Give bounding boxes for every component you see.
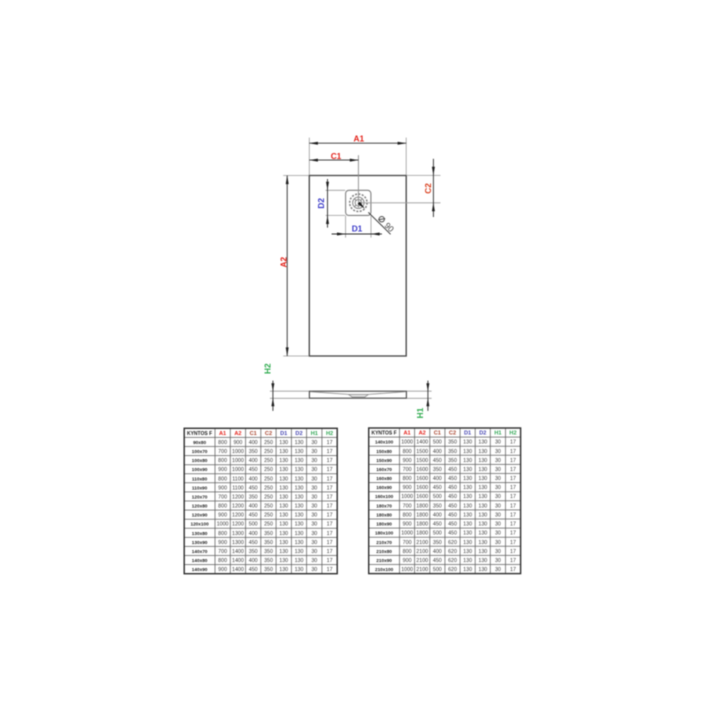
svg-text:17: 17: [327, 567, 333, 573]
svg-text:1000: 1000: [401, 494, 413, 500]
svg-text:KYNTOS F: KYNTOS F: [371, 431, 396, 437]
svg-text:130: 130: [295, 513, 304, 519]
svg-text:130: 130: [463, 522, 472, 528]
svg-text:500: 500: [433, 567, 442, 573]
svg-text:350: 350: [448, 458, 457, 464]
svg-text:800: 800: [403, 449, 412, 455]
svg-text:900: 900: [233, 440, 242, 446]
svg-text:250: 250: [264, 440, 273, 446]
svg-text:900: 900: [218, 540, 227, 546]
svg-text:17: 17: [510, 567, 516, 573]
svg-text:1500: 1500: [416, 458, 428, 464]
svg-text:250: 250: [264, 504, 273, 510]
svg-text:30: 30: [495, 467, 501, 473]
svg-text:500: 500: [433, 531, 442, 537]
svg-text:130: 130: [478, 503, 487, 509]
svg-text:350: 350: [264, 549, 273, 555]
svg-text:1800: 1800: [416, 512, 428, 518]
svg-text:17: 17: [510, 531, 516, 537]
svg-text:350: 350: [264, 558, 273, 564]
svg-text:140x70: 140x70: [192, 549, 208, 554]
svg-text:130: 130: [478, 440, 487, 446]
svg-text:350: 350: [448, 449, 457, 455]
svg-text:130: 130: [478, 485, 487, 491]
svg-text:620: 620: [448, 549, 457, 555]
svg-text:130: 130: [295, 440, 304, 446]
svg-text:30: 30: [311, 449, 317, 455]
svg-text:130: 130: [478, 540, 487, 546]
svg-text:180x80: 180x80: [376, 512, 392, 517]
svg-text:210x80: 210x80: [376, 549, 392, 554]
svg-text:450: 450: [433, 522, 442, 528]
svg-text:350: 350: [249, 495, 258, 501]
svg-text:350: 350: [433, 540, 442, 546]
svg-text:H1: H1: [415, 407, 425, 418]
svg-text:D2: D2: [479, 431, 486, 437]
svg-text:17: 17: [327, 549, 333, 555]
svg-text:130: 130: [463, 494, 472, 500]
svg-text:350: 350: [448, 440, 457, 446]
svg-text:130: 130: [295, 458, 304, 464]
svg-text:A2: A2: [419, 431, 426, 437]
svg-text:30: 30: [311, 513, 317, 519]
svg-text:30: 30: [311, 467, 317, 473]
svg-text:130: 130: [295, 549, 304, 555]
svg-text:30: 30: [495, 440, 501, 446]
svg-text:900: 900: [218, 467, 227, 473]
svg-text:110x90: 110x90: [192, 485, 208, 490]
svg-text:17: 17: [327, 540, 333, 546]
svg-text:17: 17: [510, 467, 516, 473]
svg-text:140x90: 140x90: [192, 567, 208, 572]
svg-text:1500: 1500: [416, 449, 428, 455]
svg-text:620: 620: [448, 540, 457, 546]
svg-text:120x70: 120x70: [192, 495, 208, 500]
svg-text:30: 30: [311, 504, 317, 510]
svg-text:2100: 2100: [416, 558, 428, 564]
svg-text:250: 250: [264, 476, 273, 482]
svg-text:1000: 1000: [232, 458, 244, 464]
svg-text:130: 130: [295, 540, 304, 546]
svg-text:D1: D1: [352, 224, 363, 234]
svg-text:17: 17: [327, 531, 333, 537]
svg-text:800: 800: [218, 476, 227, 482]
svg-text:130: 130: [463, 549, 472, 555]
svg-text:30: 30: [495, 476, 501, 482]
svg-text:30: 30: [495, 531, 501, 537]
svg-text:150x80: 150x80: [376, 449, 392, 454]
svg-text:450: 450: [249, 567, 258, 573]
svg-text:150x90: 150x90: [376, 458, 392, 463]
svg-text:H2: H2: [509, 431, 516, 437]
svg-text:30: 30: [495, 485, 501, 491]
svg-text:100x70: 100x70: [192, 449, 208, 454]
svg-text:30: 30: [495, 512, 501, 518]
svg-text:30: 30: [495, 567, 501, 573]
svg-text:130: 130: [279, 449, 288, 455]
svg-text:800: 800: [218, 504, 227, 510]
svg-text:130: 130: [279, 467, 288, 473]
svg-text:17: 17: [327, 467, 333, 473]
svg-text:C2: C2: [265, 431, 272, 437]
svg-text:160x70: 160x70: [376, 467, 392, 472]
svg-text:A1: A1: [404, 431, 411, 437]
svg-text:450: 450: [448, 522, 457, 528]
svg-text:400: 400: [249, 440, 258, 446]
svg-text:130: 130: [295, 495, 304, 501]
svg-text:400: 400: [249, 504, 258, 510]
svg-text:350: 350: [249, 549, 258, 555]
svg-text:180x70: 180x70: [376, 503, 392, 508]
svg-text:C2: C2: [449, 431, 456, 437]
svg-text:1400: 1400: [416, 440, 428, 446]
svg-text:H1: H1: [494, 431, 501, 437]
svg-text:1000: 1000: [401, 567, 413, 573]
svg-text:130: 130: [463, 449, 472, 455]
svg-text:400: 400: [249, 476, 258, 482]
svg-text:350: 350: [264, 567, 273, 573]
svg-text:130: 130: [478, 494, 487, 500]
svg-text:450: 450: [249, 485, 258, 491]
svg-text:250: 250: [264, 449, 273, 455]
svg-text:130: 130: [463, 512, 472, 518]
svg-text:620: 620: [448, 567, 457, 573]
svg-text:1300: 1300: [232, 531, 244, 537]
svg-text:250: 250: [264, 458, 273, 464]
svg-text:400: 400: [433, 512, 442, 518]
svg-text:450: 450: [448, 512, 457, 518]
svg-text:17: 17: [510, 540, 516, 546]
svg-text:130: 130: [295, 567, 304, 573]
svg-text:250: 250: [264, 522, 273, 528]
svg-text:1200: 1200: [232, 495, 244, 501]
svg-text:140x100: 140x100: [375, 440, 394, 445]
svg-text:30: 30: [495, 549, 501, 555]
svg-text:450: 450: [448, 494, 457, 500]
svg-text:130: 130: [478, 549, 487, 555]
svg-text:120x90: 120x90: [192, 513, 208, 518]
svg-text:1000: 1000: [401, 531, 413, 537]
svg-text:17: 17: [327, 522, 333, 528]
svg-text:180x90: 180x90: [376, 522, 392, 527]
svg-text:350: 350: [264, 540, 273, 546]
svg-text:210x90: 210x90: [376, 558, 392, 563]
svg-text:1400: 1400: [232, 558, 244, 564]
svg-text:D1: D1: [280, 431, 287, 437]
svg-text:17: 17: [510, 522, 516, 528]
svg-text:17: 17: [510, 458, 516, 464]
svg-text:1800: 1800: [416, 531, 428, 537]
svg-text:130: 130: [478, 531, 487, 537]
svg-text:130: 130: [295, 476, 304, 482]
svg-text:H2: H2: [262, 363, 272, 374]
svg-text:130: 130: [279, 567, 288, 573]
svg-text:210x70: 210x70: [376, 540, 392, 545]
svg-text:1400: 1400: [232, 567, 244, 573]
svg-text:17: 17: [510, 558, 516, 564]
svg-text:900: 900: [403, 558, 412, 564]
svg-text:2100: 2100: [416, 540, 428, 546]
svg-text:1800: 1800: [416, 522, 428, 528]
svg-text:A2: A2: [234, 431, 241, 437]
svg-text:1000: 1000: [217, 522, 229, 528]
svg-text:130: 130: [279, 440, 288, 446]
svg-text:130: 130: [279, 549, 288, 555]
svg-text:30: 30: [495, 558, 501, 564]
svg-text:17: 17: [327, 449, 333, 455]
svg-text:17: 17: [510, 476, 516, 482]
svg-text:250: 250: [264, 485, 273, 491]
svg-text:800: 800: [218, 531, 227, 537]
svg-text:160x90: 160x90: [376, 485, 392, 490]
svg-text:130: 130: [295, 558, 304, 564]
svg-text:130: 130: [279, 476, 288, 482]
svg-text:800: 800: [218, 440, 227, 446]
svg-text:KYNTOS F: KYNTOS F: [187, 431, 212, 437]
svg-text:17: 17: [510, 494, 516, 500]
svg-text:130: 130: [279, 540, 288, 546]
svg-text:450: 450: [433, 485, 442, 491]
svg-text:400: 400: [433, 476, 442, 482]
svg-text:130: 130: [463, 540, 472, 546]
svg-text:800: 800: [218, 458, 227, 464]
svg-text:1000: 1000: [232, 449, 244, 455]
svg-text:130: 130: [478, 567, 487, 573]
svg-text:30: 30: [495, 494, 501, 500]
svg-text:1800: 1800: [416, 503, 428, 509]
svg-text:17: 17: [327, 513, 333, 519]
svg-text:450: 450: [448, 503, 457, 509]
svg-text:30: 30: [311, 522, 317, 528]
svg-text:17: 17: [327, 495, 333, 501]
svg-text:800: 800: [403, 476, 412, 482]
svg-text:450: 450: [249, 540, 258, 546]
svg-text:1100: 1100: [232, 485, 243, 491]
svg-text:450: 450: [448, 485, 457, 491]
svg-text:700: 700: [403, 540, 412, 546]
svg-text:30: 30: [311, 440, 317, 446]
svg-text:30: 30: [495, 522, 501, 528]
svg-text:1600: 1600: [416, 494, 428, 500]
svg-text:900: 900: [218, 567, 227, 573]
svg-text:450: 450: [448, 467, 457, 473]
svg-text:90x80: 90x80: [193, 440, 206, 445]
svg-text:900: 900: [403, 485, 412, 491]
svg-text:160x80: 160x80: [376, 476, 392, 481]
svg-text:130x80: 130x80: [192, 531, 208, 536]
svg-text:17: 17: [327, 458, 333, 464]
svg-text:30: 30: [311, 567, 317, 573]
svg-text:A1: A1: [219, 431, 226, 437]
svg-text:500: 500: [433, 494, 442, 500]
svg-text:450: 450: [433, 458, 442, 464]
svg-text:900: 900: [403, 458, 412, 464]
svg-text:17: 17: [327, 504, 333, 510]
svg-text:130x90: 130x90: [192, 540, 208, 545]
svg-text:1600: 1600: [416, 467, 428, 473]
svg-text:C1: C1: [331, 151, 342, 161]
svg-text:130: 130: [295, 531, 304, 537]
svg-text:700: 700: [403, 467, 412, 473]
svg-text:130: 130: [463, 476, 472, 482]
svg-text:30: 30: [495, 449, 501, 455]
svg-text:1100: 1100: [232, 476, 243, 482]
svg-text:120x80: 120x80: [192, 504, 208, 509]
svg-text:130: 130: [279, 558, 288, 564]
svg-text:500: 500: [249, 522, 258, 528]
svg-text:17: 17: [510, 485, 516, 491]
svg-text:1200: 1200: [232, 522, 244, 528]
svg-text:17: 17: [510, 503, 516, 509]
svg-text:1300: 1300: [232, 540, 244, 546]
svg-text:100x80: 100x80: [192, 458, 208, 463]
svg-text:130: 130: [279, 522, 288, 528]
svg-text:250: 250: [264, 467, 273, 473]
svg-text:130: 130: [463, 440, 472, 446]
svg-text:30: 30: [311, 458, 317, 464]
svg-text:130: 130: [295, 522, 304, 528]
svg-text:A1: A1: [353, 133, 364, 143]
svg-text:30: 30: [311, 495, 317, 501]
svg-text:130: 130: [463, 458, 472, 464]
svg-text:130: 130: [279, 495, 288, 501]
svg-text:450: 450: [249, 467, 258, 473]
svg-text:450: 450: [448, 531, 457, 537]
svg-text:130: 130: [295, 485, 304, 491]
svg-text:140x80: 140x80: [192, 558, 208, 563]
svg-text:130: 130: [295, 449, 304, 455]
svg-text:C2: C2: [423, 183, 433, 194]
svg-text:130: 130: [463, 558, 472, 564]
svg-text:17: 17: [510, 549, 516, 555]
svg-text:130: 130: [279, 458, 288, 464]
svg-text:30: 30: [495, 458, 501, 464]
svg-text:900: 900: [218, 485, 227, 491]
svg-text:17: 17: [327, 476, 333, 482]
svg-text:130: 130: [295, 504, 304, 510]
svg-text:1000: 1000: [232, 467, 244, 473]
svg-text:900: 900: [218, 513, 227, 519]
svg-text:130: 130: [279, 531, 288, 537]
svg-text:350: 350: [264, 531, 273, 537]
svg-text:C1: C1: [434, 431, 441, 437]
svg-text:130: 130: [295, 467, 304, 473]
svg-text:130: 130: [463, 467, 472, 473]
svg-text:D1: D1: [464, 431, 471, 437]
svg-text:A2: A2: [278, 257, 288, 268]
svg-text:130: 130: [463, 567, 472, 573]
svg-text:110x80: 110x80: [192, 476, 208, 481]
svg-text:250: 250: [264, 513, 273, 519]
svg-text:800: 800: [218, 558, 227, 564]
svg-text:450: 450: [433, 558, 442, 564]
svg-text:30: 30: [311, 540, 317, 546]
svg-text:130: 130: [478, 458, 487, 464]
svg-text:30: 30: [311, 558, 317, 564]
svg-text:700: 700: [218, 495, 227, 501]
svg-text:500: 500: [433, 440, 442, 446]
svg-text:17: 17: [327, 485, 333, 491]
svg-text:17: 17: [510, 512, 516, 518]
svg-text:450: 450: [448, 476, 457, 482]
svg-text:D2: D2: [316, 198, 326, 209]
svg-text:1200: 1200: [232, 504, 244, 510]
svg-text:400: 400: [249, 531, 258, 537]
svg-text:130: 130: [478, 558, 487, 564]
svg-text:130: 130: [279, 513, 288, 519]
svg-text:1000: 1000: [401, 440, 413, 446]
svg-text:30: 30: [495, 540, 501, 546]
svg-text:130: 130: [478, 449, 487, 455]
svg-text:1600: 1600: [416, 485, 428, 491]
svg-text:700: 700: [403, 503, 412, 509]
svg-text:H2: H2: [326, 431, 333, 437]
svg-text:120x100: 120x100: [190, 522, 209, 527]
svg-text:130: 130: [478, 512, 487, 518]
svg-text:H1: H1: [311, 431, 318, 437]
svg-text:17: 17: [510, 440, 516, 446]
svg-text:130: 130: [478, 467, 487, 473]
svg-text:100x90: 100x90: [192, 467, 208, 472]
svg-text:180x100: 180x100: [375, 531, 394, 536]
svg-text:700: 700: [218, 449, 227, 455]
svg-text:130: 130: [463, 531, 472, 537]
svg-text:C1: C1: [250, 431, 257, 437]
svg-text:1200: 1200: [232, 513, 244, 519]
svg-text:D2: D2: [295, 431, 302, 437]
svg-text:400: 400: [249, 558, 258, 564]
svg-text:800: 800: [403, 549, 412, 555]
svg-text:2100: 2100: [416, 567, 428, 573]
svg-text:30: 30: [311, 476, 317, 482]
svg-text:130: 130: [279, 504, 288, 510]
svg-text:400: 400: [249, 458, 258, 464]
svg-text:350: 350: [249, 449, 258, 455]
svg-text:250: 250: [264, 495, 273, 501]
svg-text:130: 130: [478, 476, 487, 482]
svg-text:350: 350: [433, 467, 442, 473]
svg-text:210x100: 210x100: [375, 567, 394, 572]
svg-text:30: 30: [311, 549, 317, 555]
svg-text:130: 130: [478, 522, 487, 528]
svg-text:900: 900: [403, 522, 412, 528]
svg-text:700: 700: [218, 549, 227, 555]
svg-text:620: 620: [448, 558, 457, 564]
svg-text:130: 130: [279, 485, 288, 491]
svg-text:17: 17: [510, 449, 516, 455]
svg-text:30: 30: [495, 503, 501, 509]
svg-text:400: 400: [433, 449, 442, 455]
svg-text:1600: 1600: [416, 476, 428, 482]
svg-text:350: 350: [433, 503, 442, 509]
svg-text:17: 17: [327, 440, 333, 446]
svg-text:130: 130: [463, 503, 472, 509]
svg-text:160x100: 160x100: [375, 494, 394, 499]
svg-text:2100: 2100: [416, 549, 428, 555]
svg-text:30: 30: [311, 531, 317, 537]
svg-text:400: 400: [433, 549, 442, 555]
svg-text:30: 30: [311, 485, 317, 491]
svg-text:800: 800: [403, 512, 412, 518]
svg-text:17: 17: [327, 558, 333, 564]
svg-text:1400: 1400: [232, 549, 244, 555]
svg-text:450: 450: [249, 513, 258, 519]
svg-text:130: 130: [463, 485, 472, 491]
